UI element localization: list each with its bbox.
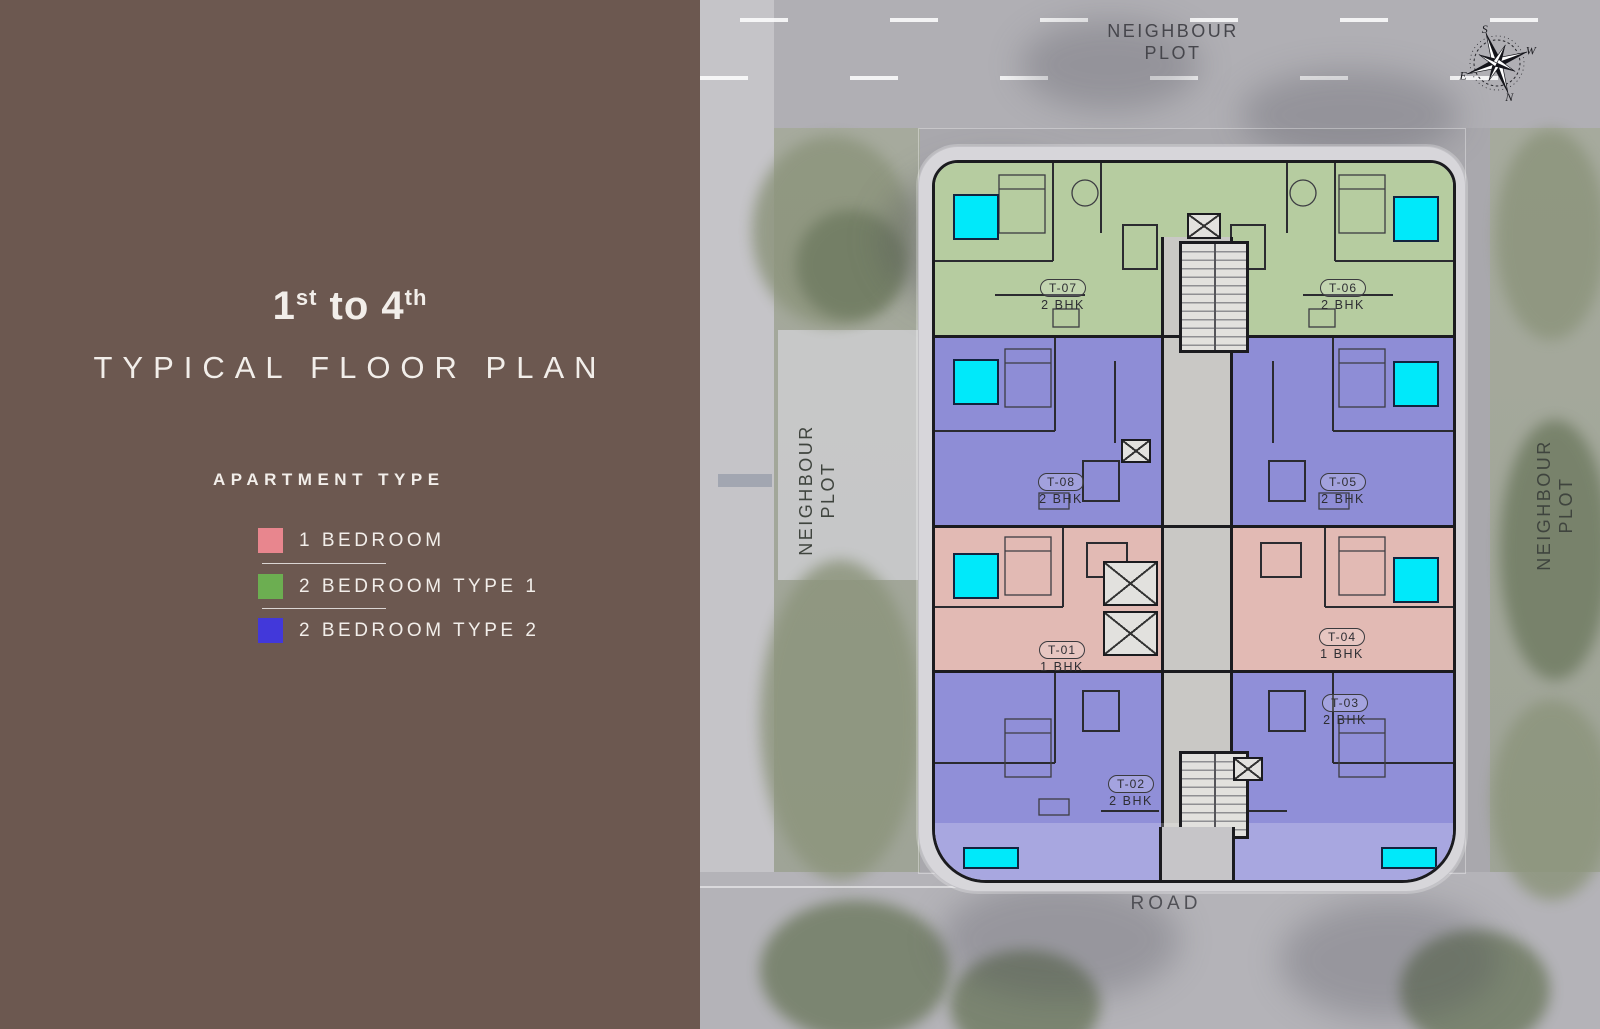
neighbour-line1: NEIGHBOUR [1107,20,1239,42]
service-shaft [1121,439,1151,463]
neighbour-plot-label-top: NEIGHBOUR PLOT [1107,20,1239,64]
floor-range-sup2: th [405,285,428,310]
structural-wall [935,525,1453,528]
page-title: TYPICAL FLOOR PLAN [0,350,700,386]
legend-divider [262,608,386,609]
unit-label-t03: T-03 2 BHK [1322,694,1368,727]
legend-swatch-1-bedroom [258,528,283,553]
legend-swatch-2-bedroom-type-1 [258,574,283,599]
unit-id: T-08 [1038,473,1084,491]
elevator [1103,611,1158,656]
unit-label-t08: T-08 2 BHK [1038,473,1084,506]
tree [760,900,950,1029]
unit-id: T-06 [1320,279,1366,297]
unit-label-t02: T-02 2 BHK [1108,775,1154,808]
balcony [953,194,999,240]
neighbour-line1: NEIGHBOUR [795,424,817,556]
neighbour-line1: NEIGHBOUR [1533,439,1555,571]
balcony [953,359,999,405]
unit-type: 2 BHK [1038,492,1084,506]
elevator [1103,561,1158,606]
unit-label-t04: T-04 1 BHK [1319,628,1365,661]
legend-label: 2 BEDROOM TYPE 1 [299,576,539,598]
floor-range-num2: 4 [381,284,404,328]
tree [760,560,920,880]
legend-divider [262,563,386,564]
service-shaft [1187,213,1221,239]
service-shaft [1233,757,1263,781]
neighbour-line2: PLOT [817,424,839,556]
unit-id: T-05 [1320,473,1366,491]
pool-balcony [1381,847,1437,869]
legend-swatch-2-bedroom-type-2 [258,618,283,643]
balcony [1393,361,1439,407]
unit-type: 2 BHK [1320,492,1366,506]
structural-wall [935,670,1453,673]
compass-w: W [1526,44,1537,58]
unit-type: 2 BHK [1322,713,1368,727]
unit-label-t07: T-07 2 BHK [1040,279,1086,312]
legend-heading: APARTMENT TYPE [213,470,445,490]
balcony [953,553,999,599]
floor-plan: T-07 2 BHK T-06 2 BHK T-08 2 BHK T-05 2 … [932,160,1456,883]
tree [1492,700,1600,900]
unit-type: 2 BHK [1108,794,1154,808]
unit-id: T-02 [1108,775,1154,793]
floor-range-sup1: st [296,285,318,310]
unit-id: T-01 [1039,641,1085,659]
shadow [1280,900,1500,1020]
pool-balcony [963,847,1019,869]
legend-item-2-bedroom-type-2: 2 BEDROOM TYPE 2 [258,618,539,643]
compass-rose-icon: N S E W [1455,21,1539,105]
unit-type: 1 BHK [1039,660,1085,674]
legend-label: 2 BEDROOM TYPE 2 [299,620,539,642]
compass-s: S [1482,22,1488,36]
stairwell-top [1179,241,1249,353]
unit-label-t06: T-06 2 BHK [1320,279,1366,312]
balcony [1393,557,1439,603]
neighbour-line2: PLOT [1555,439,1577,571]
unit-type: 2 BHK [1320,298,1366,312]
road-marking [718,474,772,487]
neighbour-plot-label-right: NEIGHBOUR PLOT [1533,439,1577,571]
balcony [1393,196,1439,242]
unit-type: 1 BHK [1319,647,1365,661]
legend-item-2-bedroom-type-1: 2 BEDROOM TYPE 1 [258,574,539,599]
unit-type: 2 BHK [1040,298,1086,312]
unit-id: T-03 [1322,694,1368,712]
site-map: NEIGHBOUR PLOT NEIGHBOUR PLOT NEIGHBOUR … [700,0,1600,1029]
info-panel: 1st to 4th TYPICAL FLOOR PLAN APARTMENT … [0,0,700,1029]
floor-range-num1: 1 [273,284,296,328]
floor-plan-page: 1st to 4th TYPICAL FLOOR PLAN APARTMENT … [0,0,1600,1029]
compass-n: N [1504,90,1514,104]
floor-range-mid: to [317,284,381,328]
floor-range-title: 1st to 4th [0,284,700,329]
neighbour-line2: PLOT [1107,42,1239,64]
unit-id: T-07 [1040,279,1086,297]
entrance-walkway [1159,827,1235,883]
tree [1496,130,1600,340]
legend-item-1-bedroom: 1 BEDROOM [258,528,445,553]
elevator-bank [1103,561,1159,661]
road-label: ROAD [1131,893,1202,915]
neighbour-plot-label-left: NEIGHBOUR PLOT [795,424,839,556]
unit-id: T-04 [1319,628,1365,646]
legend-label: 1 BEDROOM [299,530,445,552]
unit-label-t01: T-01 1 BHK [1039,641,1085,674]
unit-label-t05: T-05 2 BHK [1320,473,1366,506]
compass-e: E [1459,68,1468,82]
